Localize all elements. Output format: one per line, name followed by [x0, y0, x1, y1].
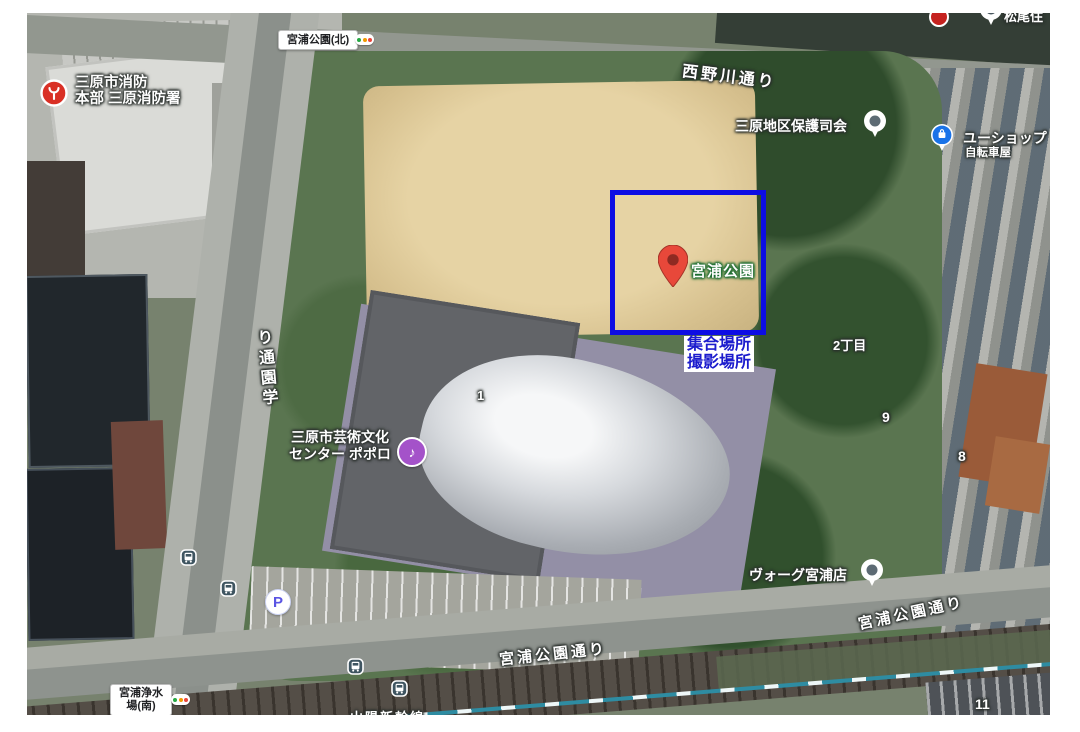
bus-stop-label-south[interactable]: 宮浦浄水 場(南): [110, 684, 172, 715]
music-note-pin[interactable]: ♪: [397, 437, 427, 467]
fire-station-pin[interactable]: [40, 79, 68, 112]
rail-label-shinkansen: 山陽新幹線: [350, 707, 425, 715]
park-name-label[interactable]: 宮浦公園: [691, 260, 755, 281]
hogoshikai-label[interactable]: 三原地区保護司会: [735, 116, 847, 136]
fire-station-icon: [40, 79, 68, 107]
traffic-signal-icon-south: [171, 694, 190, 705]
music-note-icon: ♪: [409, 445, 416, 459]
generic-place-pin-icon: [860, 558, 884, 588]
shop-pin-icon: [930, 123, 954, 153]
block-label-1: 1: [477, 388, 484, 403]
yushop-pin[interactable]: [930, 123, 954, 158]
popolo-label-line-1: 三原市芸術文化: [270, 429, 410, 446]
annotation-line-1: 集合場所: [684, 336, 754, 354]
block-label-9: 9: [882, 409, 890, 425]
vogue-pin[interactable]: [860, 558, 884, 593]
hogoshikai-pin[interactable]: [863, 109, 887, 144]
fire-station-label-line-1: 三原市消防: [75, 76, 181, 92]
block-label-2chome: 2丁目: [833, 335, 866, 354]
parking-icon[interactable]: P: [265, 589, 291, 615]
yushop-label-line-2[interactable]: 自転車屋: [965, 144, 1011, 160]
bus-stop-icon-3[interactable]: [347, 658, 364, 680]
popolo-label[interactable]: 三原市芸術文化 センター ポポロ: [270, 429, 410, 463]
screenshot-canvas: { "map": { "park": { "name": "宮浦公園" }, "…: [0, 0, 1080, 732]
satellite-dark-building-left: [27, 161, 85, 286]
satellite-roof-orange-2: [985, 436, 1050, 514]
bus-stop-north-text: 宮浦公園(北): [287, 34, 349, 47]
satellite-red-building-left: [111, 420, 167, 550]
annotation-shooting-place: 撮影場所: [684, 354, 754, 372]
matsuo-pin[interactable]: [979, 13, 1003, 32]
generic-place-pin-icon: [863, 109, 887, 139]
generic-place-pin-icon: [979, 13, 1003, 27]
block-label-8: 8: [958, 448, 966, 464]
map-canvas[interactable]: 集合場所 撮影場所 宮浦公園 西野川通り り通園学 宮浦公園通り 宮浦公園通り …: [27, 13, 1050, 715]
traffic-signal-icon-north: [355, 34, 374, 45]
bus-stop-south-text-2: 場(南): [126, 700, 155, 713]
bus-stop-south-text-1: 宮浦浄水: [119, 687, 163, 700]
red-map-pin-icon: [658, 245, 688, 287]
bus-stop-label-north[interactable]: 宮浦公園(北): [278, 30, 358, 50]
bus-stop-icon-2[interactable]: [220, 580, 237, 602]
bus-icon: [220, 580, 237, 597]
vogue-label[interactable]: ヴォーグ宮浦店: [749, 565, 847, 585]
bus-stop-icon-4[interactable]: [391, 680, 408, 702]
annotation-line-2: 撮影場所: [684, 354, 754, 372]
park-pin[interactable]: [658, 245, 688, 292]
fire-station-label[interactable]: 三原市消防 本部 三原消防署: [75, 76, 181, 107]
block-label-11: 11: [975, 696, 990, 712]
fire-station-label-line-2: 本部 三原消防署: [75, 92, 181, 108]
bus-icon: [391, 680, 408, 697]
bus-stop-icon-1[interactable]: [180, 549, 197, 571]
popolo-label-line-2: センター ポポロ: [270, 446, 410, 463]
annotation-meeting-place: 集合場所: [684, 336, 754, 354]
matsuo-label[interactable]: 松尾住: [1004, 13, 1043, 25]
bus-icon: [180, 549, 197, 566]
parking-icon-letter: P: [273, 594, 283, 611]
bus-icon: [347, 658, 364, 675]
